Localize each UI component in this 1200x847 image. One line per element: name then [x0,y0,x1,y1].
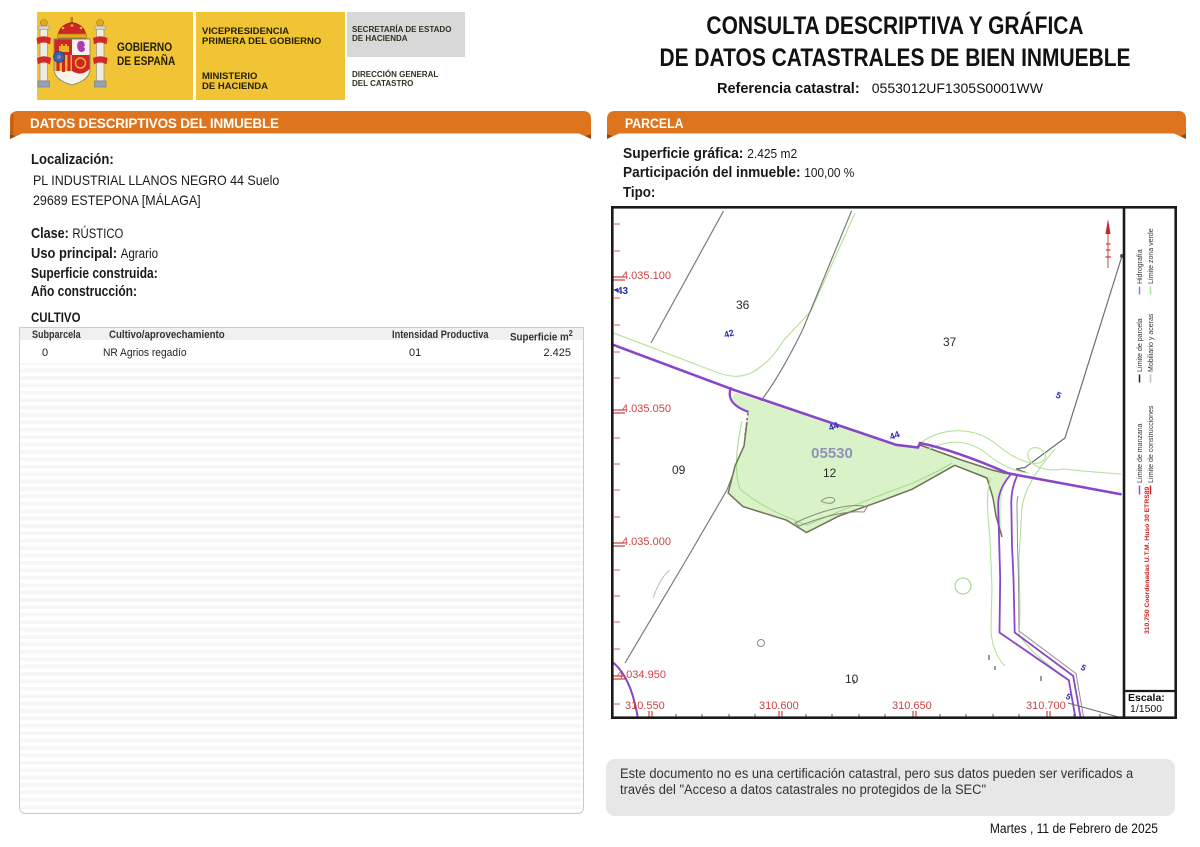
svg-text:09: 09 [672,463,686,477]
svg-text:Hidrografía: Hidrografía [1137,249,1144,284]
svg-text:310.600: 310.600 [759,700,799,712]
svg-text:1/1500: 1/1500 [1130,703,1162,715]
svg-text:310.700: 310.700 [1026,700,1066,712]
svg-text:Mobiliario y aceras: Mobiliario y aceras [1148,313,1155,372]
svg-text:37: 37 [943,335,957,349]
svg-text:310.550: 310.550 [625,700,665,712]
svg-text:4.035.050: 4.035.050 [622,403,671,415]
svg-text:310.650: 310.650 [892,700,932,712]
svg-text:Límite de construcciones: Límite de construcciones [1148,405,1155,483]
svg-text:36: 36 [736,298,750,312]
svg-text:10: 10 [845,672,859,686]
svg-text:4.035.000: 4.035.000 [622,536,671,548]
svg-text:12: 12 [823,466,837,480]
svg-text:05530: 05530 [811,445,853,462]
svg-text:Límite de parcela: Límite de parcela [1137,318,1144,372]
svg-text:4.035.100: 4.035.100 [622,270,671,282]
svg-text:Límite zona verde: Límite zona verde [1148,228,1155,284]
svg-text:Límite de manzana: Límite de manzana [1137,423,1144,483]
svg-text:310.750 Coordenadas U.T.M. Hus: 310.750 Coordenadas U.T.M. Huso 30 ETRS8… [1144,486,1151,634]
svg-text:43: 43 [617,286,629,297]
